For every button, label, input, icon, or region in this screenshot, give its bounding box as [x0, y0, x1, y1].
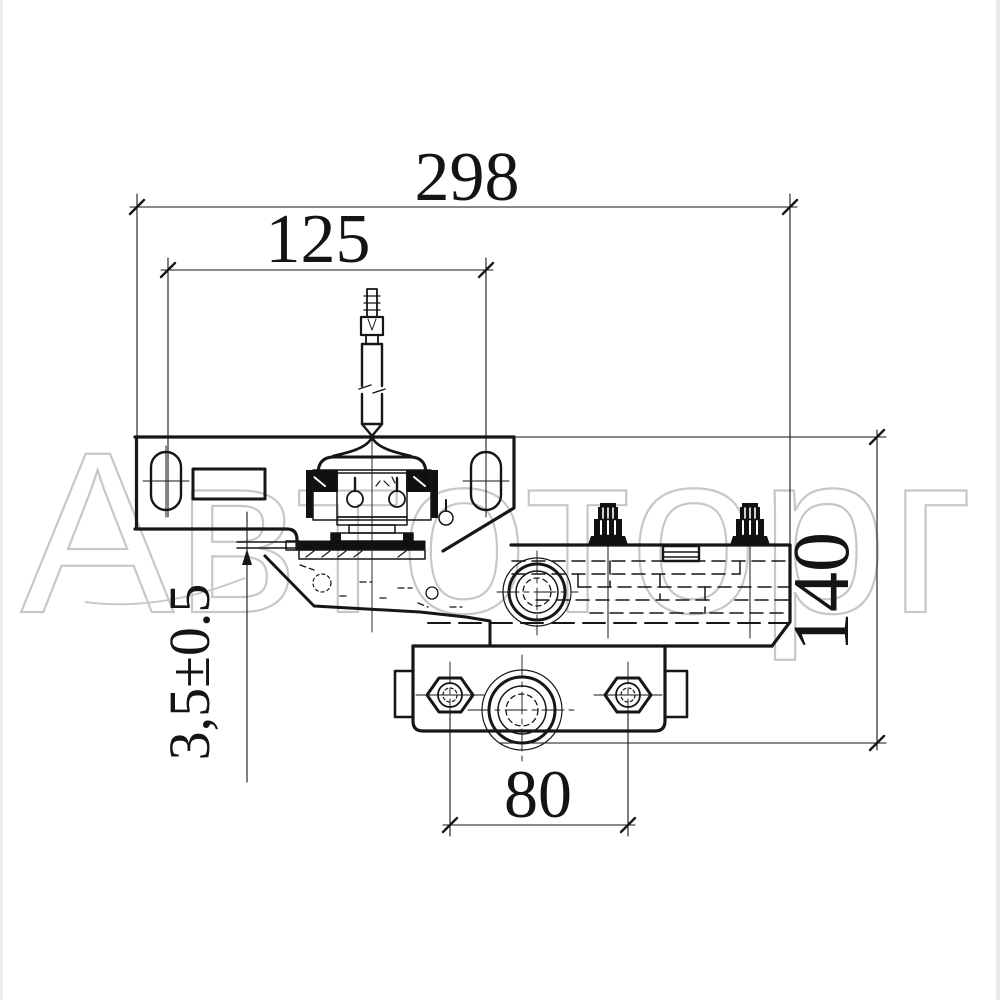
dim-125-label: 125 [266, 201, 371, 278]
dim-298-label: 298 [415, 139, 520, 216]
technical-drawing: Автоторг [0, 0, 1000, 1000]
screenshot: Автоторг [0, 0, 1000, 1000]
tab-right [665, 671, 687, 717]
tab-left [395, 671, 413, 717]
left-edge-artifact [0, 0, 3, 1000]
right-edge-artifact [996, 0, 1000, 1000]
latch-bar [299, 541, 425, 550]
dim-gap-label: 3,5±0.5 [157, 584, 222, 761]
dim-80-label: 80 [504, 756, 572, 832]
dim-140-label: 140 [778, 532, 866, 652]
hub-bearing [468, 655, 577, 766]
